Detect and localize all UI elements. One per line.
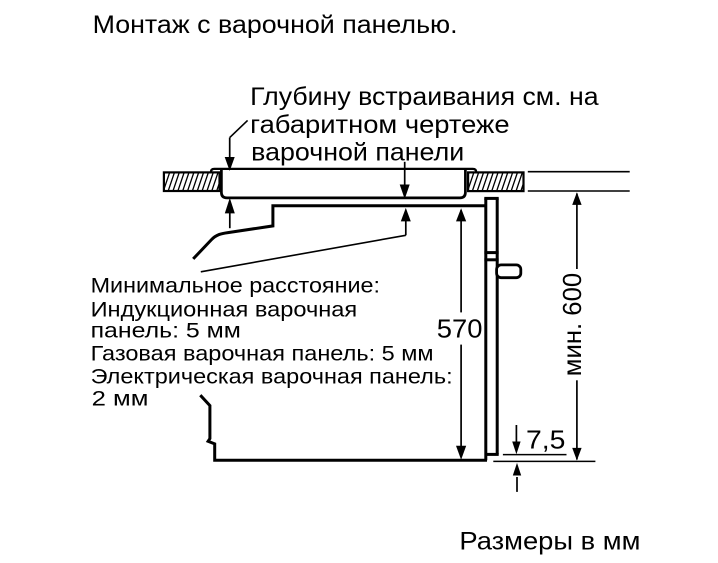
- svg-text:7,5: 7,5: [526, 424, 565, 454]
- svg-text:Монтаж с варочной панелью.: Монтаж с варочной панелью.: [93, 11, 458, 39]
- svg-text:Минимальное расстояние:: Минимальное расстояние:: [91, 274, 380, 297]
- svg-text:Глубину встраивания см. на: Глубину встраивания см. на: [250, 83, 598, 111]
- svg-text:варочной панели: варочной панели: [251, 138, 464, 166]
- svg-text:570: 570: [437, 313, 483, 343]
- svg-text:панель: 5 мм: панель: 5 мм: [91, 319, 241, 342]
- svg-text:Электрическая варочная панель:: Электрическая варочная панель:: [91, 366, 453, 389]
- svg-text:Индукционная варочная: Индукционная варочная: [91, 298, 358, 321]
- svg-text:мин. 600: мин. 600: [557, 273, 587, 376]
- svg-text:Размеры в мм: Размеры в мм: [459, 527, 640, 555]
- svg-text:габаритном чертеже: габаритном чертеже: [250, 111, 509, 139]
- svg-text:2 мм: 2 мм: [92, 388, 149, 411]
- svg-text:Газовая варочная панель: 5 мм: Газовая варочная панель: 5 мм: [91, 343, 434, 366]
